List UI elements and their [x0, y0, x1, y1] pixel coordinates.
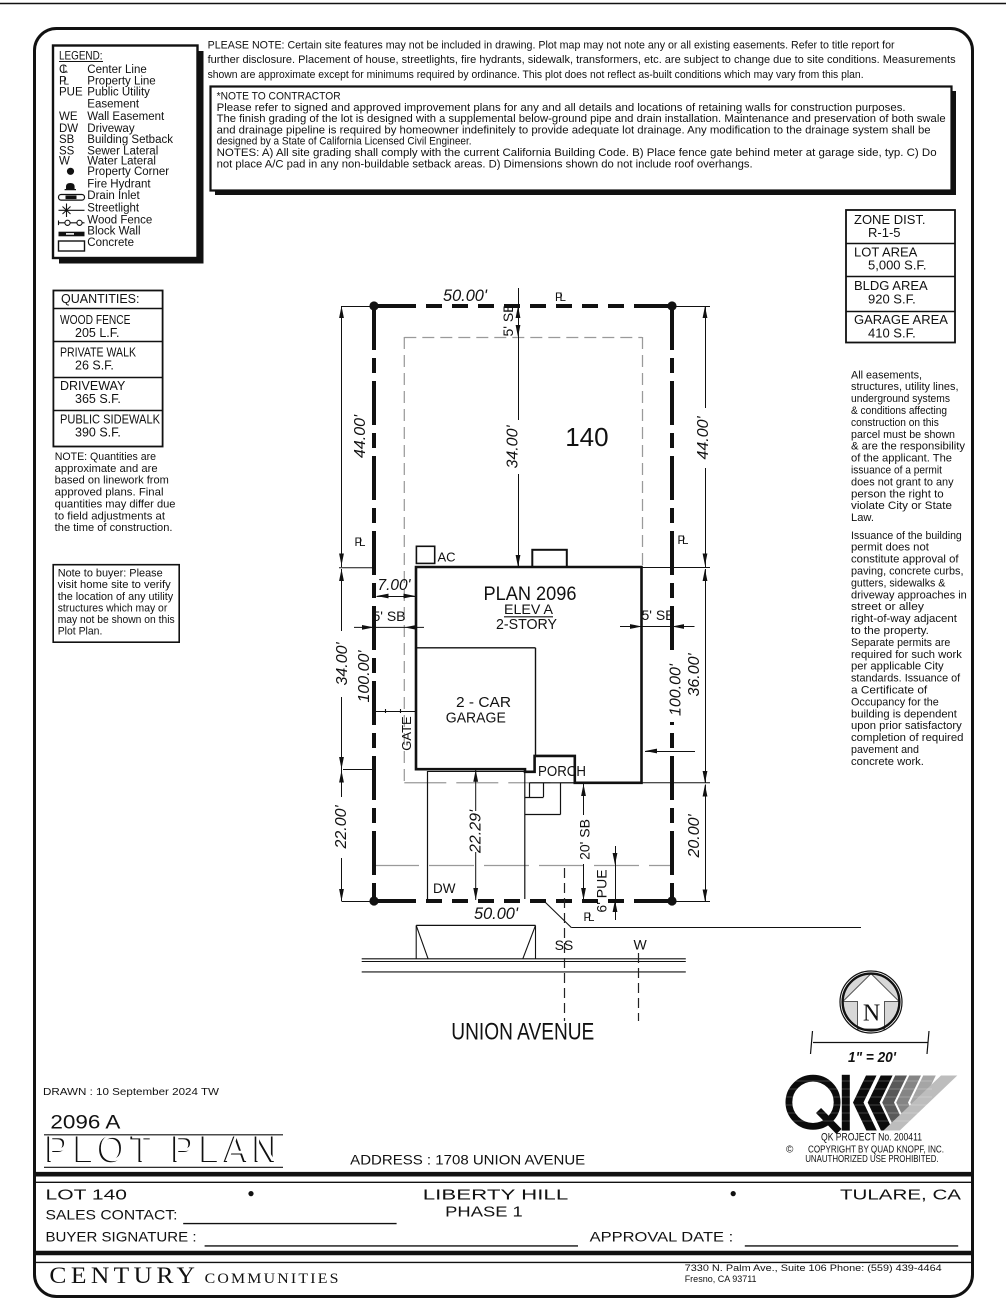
svg-text:the location of any utility: the location of any utility: [58, 591, 174, 603]
svg-text:pavement and: pavement and: [851, 744, 919, 756]
svg-text:standards. Issuance of: standards. Issuance of: [851, 673, 960, 685]
svg-text:7330 N. Palm Ave., Suite 106: 7330 N. Palm Ave., Suite 106 Phone: (559…: [685, 1263, 942, 1273]
svg-text:Property Corner: Property Corner: [87, 166, 169, 178]
svg-text:approved plans. Final: approved plans. Final: [55, 487, 164, 499]
svg-text:1" = 20': 1" = 20': [848, 1050, 897, 1066]
svg-text:may not be shown on this: may not be shown on this: [58, 614, 175, 626]
svg-text:to field adjustments at: to field adjustments at: [55, 510, 165, 522]
svg-text:PLEASE NOTE: Certain site fea: PLEASE NOTE: Certain site features may n…: [208, 40, 895, 52]
svg-text:Wall Easement: Wall Easement: [87, 111, 165, 123]
svg-text:5' SB: 5' SB: [372, 608, 405, 624]
svg-text:34.00': 34.00': [505, 425, 522, 469]
svg-text:50.00': 50.00': [474, 905, 519, 923]
svg-text:person the right to: person the right to: [851, 488, 944, 500]
svg-text:36.00': 36.00': [686, 653, 703, 697]
svg-text:L: L: [588, 912, 595, 924]
svg-text:NOTES: A) All site grading sh: NOTES: A) All site grading shall comply …: [217, 147, 937, 159]
svg-text:building is dependent: building is dependent: [851, 708, 957, 720]
svg-text:NOTE: Quantities are: NOTE: Quantities are: [55, 451, 156, 463]
svg-text:100.00': 100.00': [668, 663, 685, 716]
svg-text:Occupancy for the: Occupancy for the: [851, 696, 939, 708]
svg-text:ELEV A: ELEV A: [504, 601, 554, 617]
svg-text:BUYER SIGNATURE :: BUYER SIGNATURE :: [46, 1229, 197, 1245]
svg-text:Easement: Easement: [87, 98, 140, 110]
svg-text:W: W: [634, 937, 648, 953]
svg-text:N: N: [863, 1001, 880, 1027]
svg-text:44.00': 44.00': [352, 414, 369, 458]
svg-text:6' PUE: 6' PUE: [594, 869, 610, 912]
svg-text:22.00': 22.00': [333, 805, 350, 850]
svg-text:LOT 140: LOT 140: [46, 1187, 128, 1204]
svg-text:Plot Plan.: Plot Plan.: [58, 626, 103, 638]
svg-text:Block Wall: Block Wall: [87, 226, 140, 238]
svg-text:designed by a State of Califor: designed by a State of California Licens…: [217, 136, 472, 148]
svg-text:410 S.F.: 410 S.F.: [868, 326, 916, 341]
svg-text:gutters, sidewalks &: gutters, sidewalks &: [851, 577, 945, 589]
svg-text:issuance of a permit: issuance of a permit: [851, 465, 942, 477]
svg-text:*NOTE TO CONTRACTOR: *NOTE TO CONTRACTOR: [217, 91, 341, 103]
svg-text:44.00': 44.00': [695, 416, 712, 460]
svg-text:based on linework from: based on linework from: [55, 475, 169, 487]
svg-text:per applicable City: per applicable City: [851, 661, 944, 673]
svg-text:2-STORY: 2-STORY: [496, 616, 557, 633]
svg-text:PUBLIC SIDEWALK: PUBLIC SIDEWALK: [60, 413, 161, 427]
svg-text:50.00': 50.00': [443, 287, 488, 305]
svg-text:Fire Hydrant: Fire Hydrant: [87, 179, 151, 191]
svg-text:DW: DW: [433, 881, 456, 896]
svg-text:PRIVATE WALK: PRIVATE WALK: [60, 346, 137, 360]
svg-text:Law.: Law.: [851, 512, 874, 524]
svg-text:visit home site to verify: visit home site to verify: [58, 579, 171, 591]
svg-text:Fresno, CA 93711: Fresno, CA 93711: [685, 1274, 757, 1284]
svg-text:205 L.F.: 205 L.F.: [75, 326, 119, 340]
svg-text:does not grant to any: does not grant to any: [851, 476, 954, 488]
svg-text:structures, utility lines,: structures, utility lines,: [851, 381, 959, 393]
svg-text:& conditions affecting: & conditions affecting: [851, 405, 947, 417]
svg-text:R-1-5: R-1-5: [868, 225, 901, 240]
svg-text:construction on this: construction on this: [851, 417, 939, 429]
svg-text:20' SB: 20' SB: [577, 819, 593, 860]
svg-text:22.29': 22.29': [468, 809, 485, 854]
svg-text:completion of required: completion of required: [851, 732, 964, 744]
svg-text:upon prior satisfactory: upon prior satisfactory: [851, 720, 963, 732]
svg-text:right-of-way adjacent: right-of-way adjacent: [851, 613, 957, 625]
svg-text:Concrete: Concrete: [87, 237, 134, 249]
svg-text:WOOD FENCE: WOOD FENCE: [60, 313, 131, 327]
svg-text:the time of construction.: the time of construction.: [55, 522, 173, 534]
svg-text:920 S.F.: 920 S.F.: [868, 292, 916, 307]
svg-text:approximate and are: approximate and are: [55, 463, 158, 475]
svg-text:TULARE, CA: TULARE, CA: [840, 1187, 961, 1204]
svg-text:DW: DW: [59, 123, 78, 135]
svg-text:L: L: [560, 292, 567, 304]
svg-text:COMMUNITIES: COMMUNITIES: [205, 1271, 341, 1287]
svg-text:paving, concrete curbs,: paving, concrete curbs,: [851, 566, 964, 578]
svg-text:W: W: [59, 156, 70, 168]
svg-text:©: ©: [786, 1145, 794, 1156]
svg-text:Drain Inlet: Drain Inlet: [87, 190, 140, 202]
svg-text:2 - CAR: 2 - CAR: [456, 694, 511, 711]
svg-text:L: L: [63, 65, 69, 76]
svg-text:street or alley: street or alley: [851, 601, 925, 613]
svg-text:WE: WE: [59, 111, 78, 123]
svg-text:PLOT PLAN: PLOT PLAN: [46, 1128, 283, 1169]
svg-text:of the applicant. The: of the applicant. The: [851, 453, 952, 465]
svg-text:26 S.F.: 26 S.F.: [75, 359, 114, 373]
svg-text:APPROVAL DATE :: APPROVAL DATE :: [590, 1229, 734, 1245]
svg-text:CENTURY: CENTURY: [49, 1263, 199, 1288]
svg-text:Separate permits are: Separate permits are: [851, 637, 950, 649]
svg-text:LEGEND:: LEGEND:: [59, 49, 103, 63]
svg-text:Streetlight: Streetlight: [87, 202, 140, 214]
svg-text:34.00': 34.00': [334, 642, 351, 686]
svg-text:ADDRESS : 1708 UNION AVENUE: ADDRESS : 1708 UNION AVENUE: [350, 1152, 585, 1168]
svg-text:5' SB: 5' SB: [641, 607, 674, 623]
svg-text:DRAWN : 10 September 2024 T: DRAWN : 10 September 2024 TW: [43, 1087, 220, 1098]
svg-text:390 S.F.: 390 S.F.: [75, 426, 121, 440]
svg-text:140: 140: [565, 422, 608, 452]
svg-text:& are the responsibility: & are the responsibility: [851, 441, 966, 453]
svg-text:AC: AC: [438, 550, 456, 565]
svg-text:constitute approval of: constitute approval of: [851, 554, 959, 566]
svg-text:DRIVEWAY: DRIVEWAY: [60, 379, 126, 393]
svg-text:PUE: PUE: [59, 86, 83, 98]
svg-text:UNAUTHORIZED USE PROHIBITED.: UNAUTHORIZED USE PROHIBITED.: [805, 1154, 939, 1165]
svg-text:violate City or State: violate City or State: [851, 500, 952, 512]
svg-text:100.00': 100.00': [356, 650, 373, 703]
svg-text:a Certificate of: a Certificate of: [851, 685, 927, 697]
svg-text:Issuance of the building: Issuance of the building: [851, 530, 962, 542]
svg-text:L: L: [682, 535, 689, 547]
svg-text:Wood Fence: Wood Fence: [87, 214, 152, 226]
svg-text:not place A/C pad in any non-b: not place A/C pad in any non-buildable s…: [217, 158, 753, 170]
svg-text:All easements,: All easements,: [851, 369, 922, 381]
svg-text:5' SB: 5' SB: [500, 303, 516, 336]
svg-text:PHASE 1: PHASE 1: [445, 1204, 523, 1221]
svg-text:to the property.: to the property.: [851, 625, 929, 637]
svg-text:Note to buyer: Please: Note to buyer: Please: [58, 568, 163, 580]
svg-text:underground systems: underground systems: [851, 393, 950, 405]
svg-text:5,000 S.F.: 5,000 S.F.: [868, 258, 927, 273]
svg-text:7.00': 7.00': [378, 577, 412, 594]
svg-text:The finish grading of the lot: The finish grading of the lot is designe…: [217, 113, 946, 125]
svg-text:LIBERTY HILL: LIBERTY HILL: [423, 1187, 569, 1204]
svg-text:L: L: [359, 537, 366, 549]
svg-text:shown are approximate except f: shown are approximate except for minimum…: [208, 69, 864, 81]
svg-text:Center Line: Center Line: [87, 64, 146, 76]
svg-text:and drainage pipeline is requi: and drainage pipeline is required by hom…: [217, 124, 931, 136]
svg-text:parcel must be shown: parcel must be shown: [851, 429, 955, 441]
svg-text:required for such work: required for such work: [851, 649, 963, 661]
svg-text:SALES CONTACT:: SALES CONTACT:: [46, 1207, 178, 1223]
svg-text:driveway approaches in: driveway approaches in: [851, 589, 967, 601]
svg-text:Please refer to signed and app: Please refer to signed and approved impr…: [217, 102, 906, 114]
svg-text:structures which may or: structures which may or: [58, 602, 168, 614]
svg-text:permit does not: permit does not: [851, 542, 929, 554]
svg-text:PORCH: PORCH: [538, 764, 586, 780]
svg-text:UNION AVENUE: UNION AVENUE: [451, 1018, 594, 1045]
svg-text:Driveway: Driveway: [87, 123, 135, 135]
svg-text:Public Utility: Public Utility: [87, 86, 150, 98]
svg-text:QK PROJECT No. 200411: QK PROJECT No. 200411: [821, 1132, 922, 1144]
svg-text:concrete work.: concrete work.: [851, 756, 924, 768]
svg-text:GARAGE: GARAGE: [446, 710, 506, 727]
svg-text:SS: SS: [555, 937, 574, 953]
svg-text:QUANTITIES:: QUANTITIES:: [61, 292, 139, 306]
svg-text:further disclosure. Placement: further disclosure. Placement of house, …: [208, 54, 957, 66]
svg-text:GATE: GATE: [399, 716, 414, 751]
svg-text:quantities may differ due: quantities may differ due: [55, 498, 176, 510]
svg-text:20.00': 20.00': [686, 814, 703, 859]
svg-text:365 S.F.: 365 S.F.: [75, 392, 121, 406]
